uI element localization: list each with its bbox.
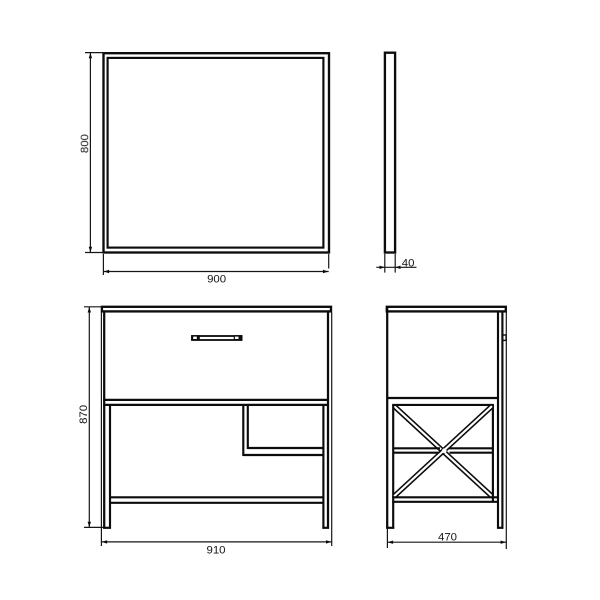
svg-text:800: 800 <box>79 134 91 153</box>
svg-text:870: 870 <box>78 405 90 424</box>
svg-text:470: 470 <box>438 532 457 544</box>
svg-text:900: 900 <box>207 274 226 286</box>
svg-text:40: 40 <box>402 257 415 269</box>
svg-text:910: 910 <box>206 545 225 557</box>
